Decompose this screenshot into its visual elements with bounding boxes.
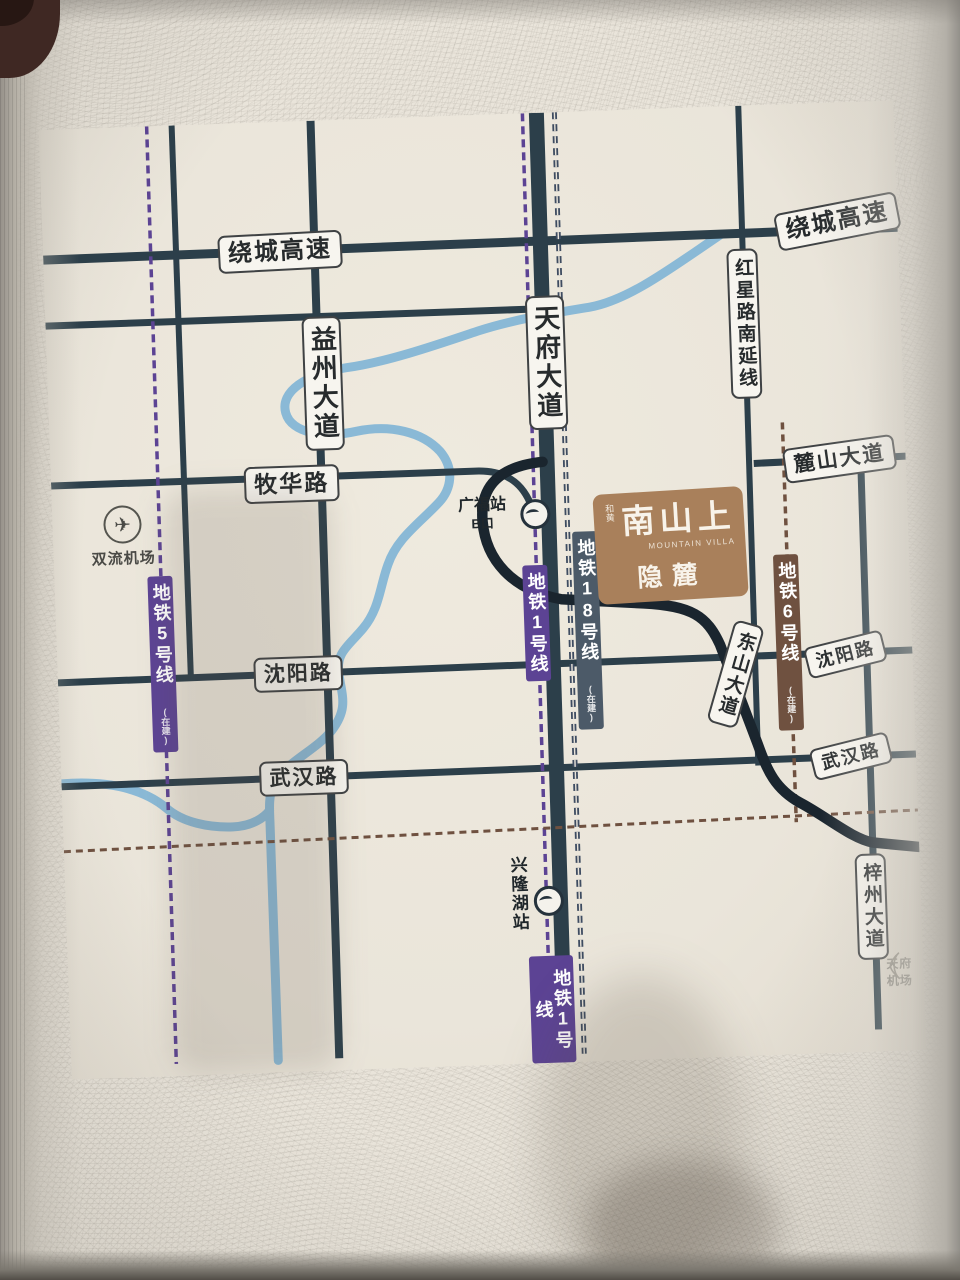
project-brand-en: MOUNTAIN VILLA [595,536,735,554]
shuangliu-airport-label: 双流机场 [91,546,156,569]
page-edge-bottom [0,1250,960,1280]
project-brand-row: 和黄 南山上 [603,496,737,539]
project-name: 隐麓 [596,552,748,597]
crescent-icon [886,950,907,981]
road-unnamed-upper [46,309,546,326]
metro-logo-icon [523,502,542,521]
road-label-zizhou-avenue: 梓州大道 [854,853,889,960]
airplane-icon: ✈ [103,505,142,544]
metro-line1-tag-mid: 地铁1号线 [522,565,551,682]
shuangliu-airport-landmark: ✈ 双流机场 [90,504,156,569]
page-stack-lines [0,0,26,1280]
book-cover-corner-dark [0,0,34,26]
road-label-yizhou-avenue: 益州大道 [301,316,345,451]
metro-line5-status: (在建) [160,707,171,745]
location-map: 绕城高速 绕城高速 益州大道 天府大道 红星路南延线 牧华路 麓山大道 沈阳路 … [39,100,927,1079]
xinglonghu-station-name: 兴隆湖站 [504,856,532,933]
metro-line6-west-path [63,810,918,852]
project-brand-prefix: 和黄 [603,504,617,523]
tianfu-airport-landmark: 天府机场 [886,950,924,989]
road-label-wuhan-left: 武汉路 [259,759,349,797]
road-wuhan [62,754,917,787]
project-brand-cn: 南山上 [620,498,737,538]
road-label-shenyang-left: 沈阳路 [253,655,343,693]
road-ring-expressway [43,227,898,260]
photo-shadow-hand-dark [588,1160,778,1280]
metro-line1-label-mid: 地铁1号线 [525,572,549,675]
guangfu-station-exit: B口 [450,512,515,533]
road-label-muhua-road: 牧华路 [244,464,340,504]
metro-line6-label: 地铁6号线 [776,561,800,664]
road-label-hongxing-south-ext: 红星路南延线 [726,248,762,399]
metro-line1-tag-south: 地铁1号线 [529,955,576,1063]
metro-logo-icon [536,889,555,908]
road-west-vertical [172,126,191,679]
road-label-ring-expressway-left: 绕城高速 [217,230,343,274]
metro-line6-status: (在建) [785,685,796,723]
road-label-tianfu-avenue: 天府大道 [525,295,569,430]
metro-line5-label: 地铁5号线 [150,583,174,686]
metro-line18-status: (在建) [585,684,596,722]
page-edge-top [0,0,960,24]
brochure-page-photo: 绕城高速 绕城高速 益州大道 天府大道 红星路南延线 牧华路 麓山大道 沈阳路 … [0,0,960,1280]
book-cover-corner [0,0,60,78]
project-logo: 和黄 南山上 MOUNTAIN VILLA 隐麓 [592,486,748,605]
metro-line1-label-south: 地铁1号线 [533,968,574,1051]
